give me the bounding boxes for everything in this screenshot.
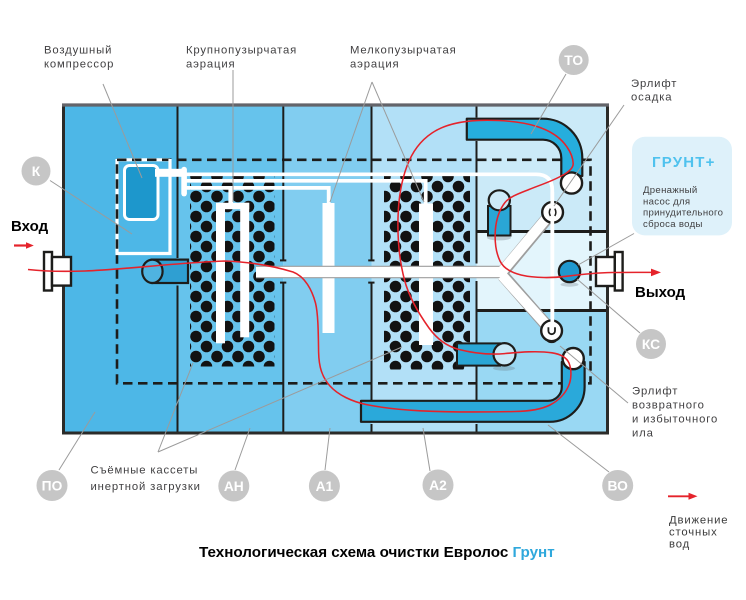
svg-text:Эрлифт: Эрлифт [632, 386, 678, 398]
svg-text:К: К [32, 164, 41, 179]
svg-text:Дренажный: Дренажный [643, 185, 697, 196]
svg-text:Вход: Вход [11, 218, 49, 235]
svg-text:Эрлифт: Эрлифт [631, 78, 677, 90]
svg-text:А1: А1 [316, 479, 334, 494]
svg-text:компрессор: компрессор [44, 59, 114, 71]
svg-text:Воздушный: Воздушный [44, 45, 112, 57]
svg-text:аэрация: аэрация [186, 59, 235, 71]
svg-text:принудительного: принудительного [643, 208, 723, 219]
svg-text:возвратного: возвратного [632, 400, 705, 412]
svg-text:сточных: сточных [669, 527, 718, 539]
svg-text:Движение: Движение [669, 515, 728, 527]
svg-text:ила: ила [632, 428, 654, 440]
svg-text:Выход: Выход [635, 284, 686, 301]
svg-text:ТО: ТО [564, 53, 583, 68]
svg-text:АН: АН [224, 479, 244, 494]
svg-text:сброса воды: сброса воды [643, 219, 703, 230]
svg-text:Мелкопузырчатая: Мелкопузырчатая [350, 45, 457, 57]
svg-text:инертной загрузки: инертной загрузки [91, 481, 201, 493]
svg-text:ВО: ВО [608, 479, 629, 494]
svg-text:Съёмные кассеты: Съёмные кассеты [91, 465, 199, 477]
svg-text:КС: КС [642, 337, 660, 352]
svg-text:ПО: ПО [42, 479, 63, 494]
svg-text:аэрация: аэрация [350, 59, 399, 71]
svg-text:и избыточного: и избыточного [632, 414, 718, 426]
svg-text:Крупнопузырчатая: Крупнопузырчатая [186, 45, 297, 57]
svg-text:ГРУНТ+: ГРУНТ+ [652, 154, 716, 171]
svg-text:А2: А2 [429, 478, 447, 493]
svg-text:осадка: осадка [631, 92, 672, 104]
svg-text:вод: вод [669, 539, 690, 551]
svg-text:насос для: насос для [643, 196, 690, 207]
svg-text:Технологическая схема очистки: Технологическая схема очистки Евролос Гр… [199, 544, 555, 561]
